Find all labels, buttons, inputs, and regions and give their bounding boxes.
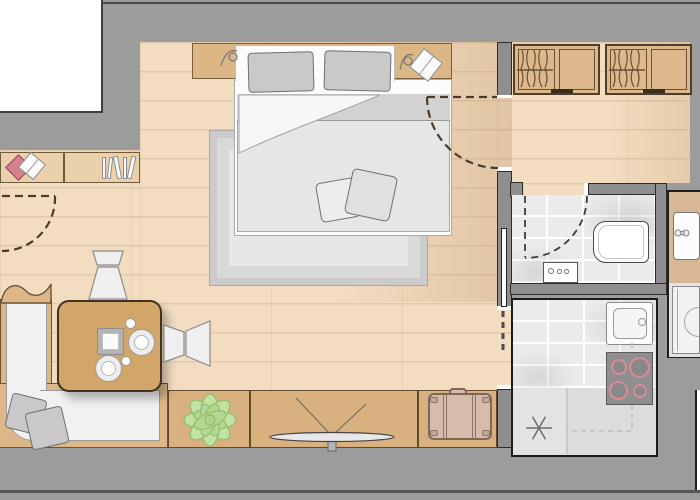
wardrobe-handle: [551, 89, 573, 93]
kitchen-room: [511, 298, 658, 457]
wall-stub-bedroom-door: [497, 42, 512, 97]
washer-knob: [548, 268, 554, 274]
bathtub-edge-line: [677, 289, 678, 351]
plate-center: [134, 335, 149, 350]
shelf-divider: [63, 153, 65, 182]
washer-knob: [557, 269, 562, 274]
sink-drain: [638, 318, 646, 326]
wardrobe-handle: [643, 89, 665, 93]
book-spine-line: [418, 56, 434, 76]
wall-bottom-edge-line: [0, 490, 700, 493]
bed-pillow-left: [247, 51, 314, 93]
suitcase-corner: [482, 430, 490, 436]
wardrobe-hanging-section: [518, 49, 555, 90]
shelf-book-1: [102, 157, 106, 179]
plate: [128, 329, 155, 356]
door-jamb: [497, 95, 512, 98]
wardrobe-unit-2: [605, 44, 692, 95]
plate-center: [101, 361, 116, 376]
bed-throw-pillow-2: [344, 168, 399, 223]
table-tray: [97, 328, 124, 355]
utility-room: [667, 190, 700, 358]
wall-bathroom-right: [655, 183, 667, 295]
suitcase: [428, 393, 492, 440]
wardrobe-hanging-section: [610, 49, 647, 90]
pocket-door-leaf: [501, 228, 507, 307]
burner: [633, 384, 647, 398]
wall-stub-kitchen-left: [497, 389, 512, 448]
toilet: [593, 221, 649, 263]
plate: [95, 355, 122, 382]
wardrobe-door-panel: [559, 49, 595, 90]
wall-bathroom-top: [588, 183, 665, 195]
wall-bathroom-bottom: [510, 283, 667, 295]
tv-cabinet: [250, 390, 418, 448]
cup: [125, 318, 136, 329]
wall-top-edge-line: [103, 2, 700, 4]
floor-plan: [0, 0, 700, 500]
vanity-sink: [673, 212, 700, 260]
bed-pillow-right: [323, 50, 391, 92]
exterior-top-left: [0, 0, 103, 113]
cooktop: [606, 352, 653, 405]
wardrobe-unit-1: [513, 44, 600, 95]
suitcase-corner: [482, 397, 490, 403]
bathtub: [672, 286, 700, 354]
tray-napkin: [102, 333, 119, 350]
washing-machine: [543, 262, 578, 283]
suitcase-corner: [430, 430, 438, 436]
bathtub-basin: [684, 307, 700, 337]
duvet-fold-band: [237, 94, 450, 121]
wardrobe-door-panel: [651, 49, 687, 90]
cup: [121, 356, 131, 366]
burner: [629, 357, 650, 378]
plant-cabinet: [168, 390, 250, 448]
suitcase-strap: [472, 395, 476, 438]
exterior-bottom-right: [695, 390, 700, 490]
toilet-seat: [598, 225, 644, 259]
burner: [611, 359, 627, 375]
suitcase-corner: [430, 397, 438, 403]
burner: [609, 381, 628, 400]
suitcase-strap: [443, 395, 447, 438]
washer-knob: [564, 269, 569, 274]
kitchen-sink: [606, 302, 653, 345]
